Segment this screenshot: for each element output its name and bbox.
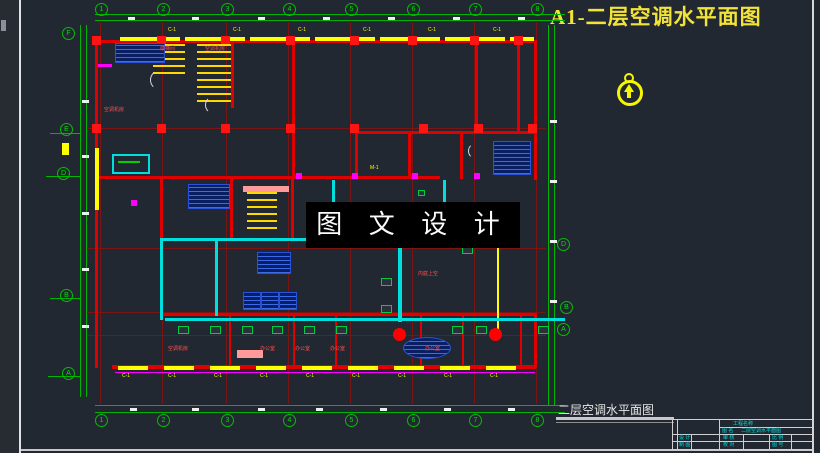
window-tag: C-1 xyxy=(428,28,436,33)
fan-coil-unit xyxy=(336,326,347,334)
fan-coil-unit xyxy=(381,278,392,286)
window-tag: C-1 xyxy=(214,374,222,379)
axis-bubble-A: A xyxy=(62,367,75,380)
window-segment xyxy=(394,366,424,370)
door-swing-arc xyxy=(205,96,223,114)
stair-treads xyxy=(197,44,231,102)
window-tag: C-1 xyxy=(260,374,268,379)
dimension-line xyxy=(95,412,565,413)
fan-coil-unit xyxy=(242,326,253,334)
fan-coil-unit xyxy=(538,326,549,334)
ahu-equipment-hatch xyxy=(243,292,261,310)
window-tag: C-1 xyxy=(363,28,371,33)
dimension-text-mark xyxy=(258,17,265,20)
window-tag: C-1 xyxy=(444,374,452,379)
room-label: 内庭上空 xyxy=(418,272,438,277)
window-segment xyxy=(250,37,310,41)
column-marker xyxy=(92,124,101,133)
window-tag: C-1 xyxy=(298,28,306,33)
drawing-name-label: 图 名 xyxy=(722,428,733,434)
scale-label: 比 例 xyxy=(772,435,783,441)
door-marker xyxy=(296,173,302,179)
axis-bubble-3: 3 xyxy=(221,414,234,427)
wall-segment xyxy=(408,131,411,179)
window-segment xyxy=(210,366,240,370)
wall-segment xyxy=(355,131,537,134)
column-marker xyxy=(514,36,523,45)
number-label: 图 号 xyxy=(772,442,783,448)
window-segment xyxy=(62,143,69,155)
axis-bubble-5: 5 xyxy=(345,414,358,427)
axis-bubble-3: 3 xyxy=(221,3,234,16)
fan-coil-unit xyxy=(452,326,463,334)
dimension-text-mark xyxy=(518,17,525,20)
window-tag: C-1 xyxy=(490,374,498,379)
column-marker xyxy=(286,124,295,133)
window-segment xyxy=(164,366,194,370)
column-marker xyxy=(350,124,359,133)
axis-bubble-A: A xyxy=(557,323,570,336)
dimension-text-mark xyxy=(192,408,199,411)
wall-segment xyxy=(95,176,440,179)
window-tag: M-1 xyxy=(370,166,379,171)
cad-viewport: A1-二层空调水平面图 空调机房楼梯间空调机房内庭上空空调机房办公室办公室办公室… xyxy=(0,0,820,453)
equipment-outline xyxy=(112,154,150,174)
fan-coil-unit xyxy=(418,190,425,196)
axis-bubble-8: 8 xyxy=(531,3,544,16)
caption-underline-thin xyxy=(556,422,674,423)
dimension-text-mark xyxy=(316,408,323,411)
ahu-equipment-hatch xyxy=(261,292,279,310)
dimension-text-mark xyxy=(550,120,557,123)
window-segment xyxy=(185,37,245,41)
door-marker xyxy=(474,173,480,179)
equipment-line xyxy=(118,161,140,163)
window-tag: C-1 xyxy=(122,374,130,379)
room-label: 办公室 xyxy=(295,347,310,352)
axis-bubble-6: 6 xyxy=(407,414,420,427)
window-tag: C-1 xyxy=(352,374,360,379)
window-tag: C-1 xyxy=(306,374,314,379)
room-label: 空调机房 xyxy=(104,108,124,113)
room-label: 办公室 xyxy=(260,347,275,352)
room-label: 办公室 xyxy=(330,347,345,352)
gridh xyxy=(88,248,546,249)
dimension-text-mark xyxy=(550,240,557,243)
wall-segment xyxy=(230,176,233,240)
stair-treads xyxy=(247,192,277,234)
dimension-text-mark xyxy=(453,17,460,20)
highlight-bar xyxy=(243,186,289,192)
title-block-line xyxy=(691,434,692,449)
north-arrow-top-circle xyxy=(624,73,634,83)
wall-segment xyxy=(534,313,537,368)
column-marker xyxy=(470,36,479,45)
ahu-equipment-hatch xyxy=(493,141,531,175)
door-marker xyxy=(98,64,112,67)
column-marker xyxy=(474,124,483,133)
axis-bubble-2: 2 xyxy=(157,414,170,427)
dimension-line xyxy=(86,25,87,397)
dimension-text-mark xyxy=(388,17,395,20)
dimension-text-mark xyxy=(444,408,451,411)
axis-bubble-6: 6 xyxy=(407,3,420,16)
caption-underline xyxy=(556,417,674,420)
draft-label: 制 图 xyxy=(679,442,690,448)
title-block-line xyxy=(769,434,770,449)
fan-coil-unit xyxy=(476,326,487,334)
axis-bubble-D: D xyxy=(557,238,570,251)
axis-bubble-1: 1 xyxy=(95,414,108,427)
wall-segment xyxy=(460,131,463,179)
column-marker xyxy=(157,124,166,133)
window-segment xyxy=(348,366,378,370)
project-label: 工程名称 xyxy=(733,421,753,427)
watermark-overlay: 图 文 设 计 xyxy=(306,202,520,248)
title-block-line xyxy=(743,434,744,449)
fan-coil-unit xyxy=(304,326,315,334)
chilled-water-pipe xyxy=(215,240,218,316)
wall-segment xyxy=(475,40,478,133)
chilled-water-pipe xyxy=(398,236,402,322)
ahu-equipment-hatch xyxy=(115,43,165,63)
column-marker xyxy=(286,36,295,45)
door-marker xyxy=(352,173,358,179)
axis-bubble-F: F xyxy=(62,27,75,40)
dimension-line xyxy=(554,25,555,405)
dimension-text-mark xyxy=(550,180,557,183)
axis-bubble-7: 7 xyxy=(469,3,482,16)
plan-caption: 二层空调水平面图 xyxy=(558,401,654,418)
dimension-text-mark xyxy=(128,17,135,20)
dimension-text-mark xyxy=(82,268,89,271)
axis-bubble-1: 1 xyxy=(95,3,108,16)
dimension-text-mark xyxy=(258,408,265,411)
window-segment xyxy=(315,37,375,41)
window-tag: C-1 xyxy=(398,374,406,379)
door-swing-arc xyxy=(150,70,170,90)
axis-bubble-E: E xyxy=(60,123,73,136)
dimension-text-mark xyxy=(380,408,387,411)
gridv xyxy=(100,22,101,404)
door-swing-arc xyxy=(468,143,484,159)
axis-bubble-2: 2 xyxy=(157,3,170,16)
wall-segment xyxy=(231,40,234,108)
drawing-name-value: 二层空调水平面图 xyxy=(741,428,781,434)
dimension-text-mark xyxy=(82,325,89,328)
axis-bubble-4: 4 xyxy=(283,3,296,16)
room-label: 空调机房 xyxy=(205,47,225,52)
door-marker xyxy=(412,173,418,179)
column-dot xyxy=(489,328,502,341)
fan-coil-unit xyxy=(178,326,189,334)
fan-coil-unit xyxy=(381,305,392,313)
ahu-equipment-hatch xyxy=(188,184,230,209)
dimension-line xyxy=(548,25,549,405)
dimension-text-mark xyxy=(508,408,515,411)
column-marker xyxy=(419,124,428,133)
axis-bubble-5: 5 xyxy=(345,3,358,16)
axis-bubble-8: 8 xyxy=(531,414,544,427)
dimension-line xyxy=(80,25,81,397)
axis-bubble-B: B xyxy=(60,289,73,302)
axis-bubble-4: 4 xyxy=(283,414,296,427)
title-block: 工程名称 图 名 二层空调水平面图 设 计 制 图 审 核 校 对 比 例 图 … xyxy=(672,419,814,450)
dimension-text-mark xyxy=(82,100,89,103)
wall-segment xyxy=(355,131,358,179)
dimension-text-mark xyxy=(323,17,330,20)
window-segment xyxy=(302,366,332,370)
door-marker xyxy=(115,372,535,373)
dimension-text-mark xyxy=(550,300,557,303)
axis-bubble-7: 7 xyxy=(469,414,482,427)
column-marker xyxy=(350,36,359,45)
dimension-line xyxy=(95,20,565,21)
door-marker xyxy=(131,200,137,206)
gridv xyxy=(288,22,289,404)
wall-segment xyxy=(534,40,537,180)
north-arrow-head xyxy=(624,84,634,92)
room-label: 办公室 xyxy=(425,347,440,352)
dimension-line xyxy=(95,405,565,406)
ahu-equipment-hatch xyxy=(257,252,291,274)
design-label: 设 计 xyxy=(679,435,690,441)
dimension-text-mark xyxy=(82,155,89,158)
wall-segment xyxy=(292,40,295,179)
chilled-water-pipe xyxy=(160,240,163,320)
wall-segment xyxy=(517,40,520,133)
wall-segment xyxy=(291,176,294,240)
axis-bubble-B: B xyxy=(560,301,573,314)
window-tag: C-1 xyxy=(168,374,176,379)
dimension-text-mark xyxy=(82,212,89,215)
room-label: 楼梯间 xyxy=(160,47,175,52)
window-tag: C-1 xyxy=(233,28,241,33)
column-marker xyxy=(92,36,101,45)
column-marker xyxy=(221,124,230,133)
room-label: 空调机房 xyxy=(168,347,188,352)
window-segment xyxy=(120,37,180,41)
window-segment xyxy=(95,148,99,210)
fan-coil-unit xyxy=(272,326,283,334)
dimension-text-mark xyxy=(130,408,137,411)
axis-bubble-D: D xyxy=(57,167,70,180)
window-segment xyxy=(440,366,470,370)
check-label: 审 核 xyxy=(723,435,734,441)
window-tag: C-1 xyxy=(168,28,176,33)
gridh xyxy=(88,335,546,336)
window-segment xyxy=(256,366,286,370)
window-tag: C-1 xyxy=(493,28,501,33)
chilled-water-pipe xyxy=(165,318,565,321)
column-marker xyxy=(408,36,417,45)
north-arrow-stem xyxy=(627,92,631,98)
dimension-text-mark xyxy=(192,17,199,20)
window-segment xyxy=(486,366,516,370)
fan-coil-unit xyxy=(210,326,221,334)
column-marker xyxy=(528,124,537,133)
ahu-equipment-hatch xyxy=(279,292,297,310)
title-block-line xyxy=(791,434,792,449)
proof-label: 校 对 xyxy=(723,442,734,448)
column-dot xyxy=(393,328,406,341)
window-segment xyxy=(118,366,148,370)
